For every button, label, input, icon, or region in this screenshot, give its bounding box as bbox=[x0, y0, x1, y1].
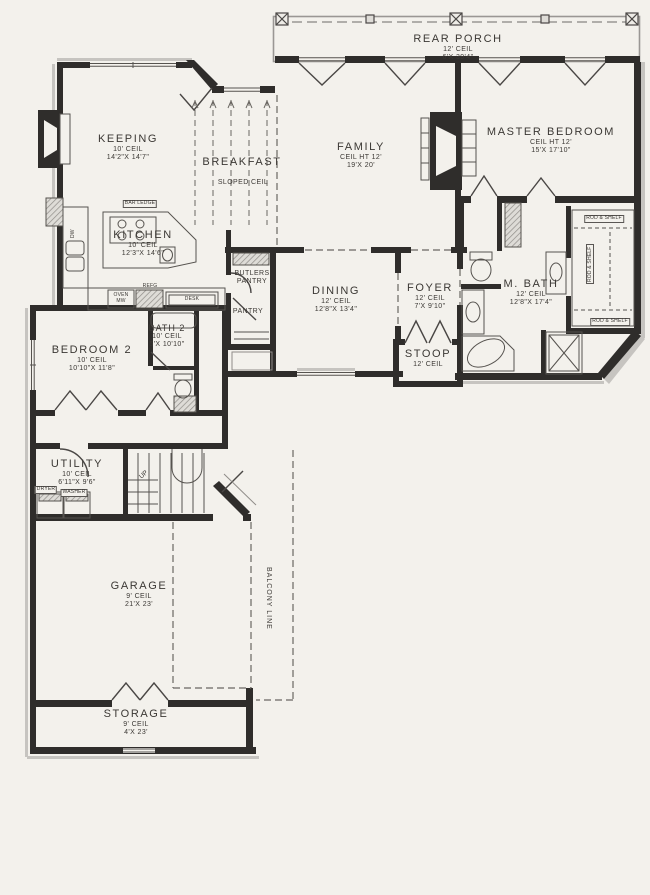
room-ceiling: 9' CEIL bbox=[111, 593, 168, 601]
keeping-hearth bbox=[60, 114, 70, 164]
room-label-rear-porch: REAR PORCH 12' CEIL 6'X 39'4" bbox=[413, 33, 502, 62]
room-name: KITCHEN bbox=[113, 229, 172, 242]
room-dims: 15'X 17'10" bbox=[487, 147, 615, 155]
dashed-lines bbox=[173, 95, 460, 700]
room-name: UTILITY bbox=[51, 458, 103, 471]
room-label-pantry: PANTRY bbox=[233, 308, 263, 316]
kitchen-sink bbox=[66, 241, 84, 255]
floor-plan: REAR PORCH 12' CEIL 6'X 39'4" KEEPING 10… bbox=[0, 0, 650, 895]
room-name: STOOP bbox=[405, 348, 451, 361]
post-x-icon bbox=[626, 13, 638, 25]
room-dims: 6'11"X 9'6" bbox=[51, 479, 103, 487]
room-label-bedroom-2: BEDROOM 2 10' CEIL 10'10"X 11'8" bbox=[52, 344, 132, 373]
room-ceiling: CEIL HT 12' bbox=[337, 154, 385, 162]
room-dims: 14'2"X 14'7" bbox=[98, 154, 158, 162]
room-ceiling: 12' CEIL bbox=[312, 298, 360, 306]
room-ceiling: 10' CEIL bbox=[98, 146, 158, 154]
kitchen-cabinet bbox=[46, 198, 63, 226]
porch-posts bbox=[276, 13, 638, 25]
room-ceiling: 10' CEIL bbox=[52, 357, 132, 365]
room-name: REAR PORCH bbox=[413, 33, 502, 46]
room-label-foyer: FOYER 12' CEIL 7'X 9'10" bbox=[407, 282, 453, 311]
room-ceiling: 12' CEIL bbox=[407, 295, 453, 303]
butlers-counter bbox=[233, 253, 269, 265]
post-x-icon bbox=[276, 13, 288, 25]
room-dims: 12'8"X 13'4" bbox=[312, 306, 360, 314]
room-name: FOYER bbox=[407, 282, 453, 295]
room-ceiling: 12' CEIL bbox=[504, 291, 559, 299]
room-label-garage: GARAGE 9' CEIL 21'X 23' bbox=[111, 580, 168, 609]
room-ceiling: 9' CEIL bbox=[104, 721, 169, 729]
room-name: BUTLERS bbox=[234, 270, 269, 278]
room-name: MASTER BEDROOM bbox=[487, 126, 615, 139]
room-label-dining: DINING 12' CEIL 12'8"X 13'4" bbox=[312, 285, 360, 314]
floor-plan-page: REAR PORCH 12' CEIL 6'X 39'4" KEEPING 10… bbox=[0, 0, 650, 895]
dishwasher-label: DW bbox=[70, 229, 76, 238]
room-ceiling: 10' CEIL bbox=[51, 471, 103, 479]
room-label-kitchen: KITCHEN 10' CEIL 12'3"X 14'6" bbox=[113, 229, 172, 258]
exterior-planter bbox=[232, 352, 272, 370]
refg-label: REFG bbox=[143, 284, 158, 290]
room-dims: 21'X 23' bbox=[111, 601, 168, 609]
room-ceiling: 12' CEIL bbox=[405, 361, 451, 369]
windows bbox=[30, 58, 605, 752]
dryer-label: DRYER bbox=[35, 486, 57, 494]
washer-label: WASHER bbox=[61, 489, 88, 497]
room-name: BATH 2 bbox=[149, 323, 186, 333]
room-name: DINING bbox=[312, 285, 360, 298]
room-name: FAMILY bbox=[337, 141, 385, 154]
refrigerator bbox=[136, 290, 163, 308]
master-vanity-1 bbox=[462, 290, 484, 334]
linen-shelves bbox=[174, 396, 196, 412]
mw-label-line: MW bbox=[114, 299, 129, 305]
room-dims: 5'X 10'10" bbox=[149, 341, 186, 349]
room-ceiling: 10' CEIL bbox=[113, 242, 172, 250]
room-label-bath-2: BATH 2 10' CEIL 5'X 10'10" bbox=[149, 323, 186, 349]
room-label-utility: UTILITY 10' CEIL 6'11"X 9'6" bbox=[51, 458, 103, 487]
room-name: GARAGE bbox=[111, 580, 168, 593]
exterior-trim bbox=[25, 58, 645, 759]
bar-ledge-label: BAR LEDGE bbox=[123, 200, 157, 208]
room-label-breakfast-ceil: SLOPED CEIL bbox=[218, 179, 268, 187]
room-label-master-bath: M. BATH 12' CEIL 12'8"X 17'4" bbox=[504, 278, 559, 307]
room-name: PANTRY bbox=[233, 308, 263, 316]
room-label-stoop: STOOP 12' CEIL bbox=[405, 348, 451, 369]
room-label-storage: STORAGE 9' CEIL 4'X 23' bbox=[104, 708, 169, 737]
room-label-family: FAMILY CEIL HT 12' 19'X 20' bbox=[337, 141, 385, 170]
bath2-toilet-tank bbox=[174, 374, 192, 380]
master-closet bbox=[572, 210, 634, 326]
oven-label: OVEN MW bbox=[114, 293, 129, 305]
room-label-butlers-pantry: BUTLERS PANTRY bbox=[234, 270, 269, 286]
room-name: PANTRY bbox=[234, 278, 269, 286]
wall-pier bbox=[505, 203, 521, 247]
room-dims: 4'X 23' bbox=[104, 729, 169, 737]
room-dims: 7'X 9'10" bbox=[407, 303, 453, 311]
family-shelves bbox=[421, 118, 429, 180]
room-label-keeping: KEEPING 10' CEIL 14'2"X 14'7" bbox=[98, 133, 158, 162]
rod-shelf-label: ROD & SHELF bbox=[586, 244, 594, 284]
room-dims: 12'8"X 17'4" bbox=[504, 299, 559, 307]
post-x-icon bbox=[450, 13, 462, 25]
room-dims: 19'X 20' bbox=[337, 162, 385, 170]
bath2-toilet bbox=[175, 380, 191, 398]
room-label-master-bedroom: MASTER BEDROOM CEIL HT 12' 15'X 17'10" bbox=[487, 126, 615, 155]
room-ceiling: CEIL HT 12' bbox=[487, 139, 615, 147]
room-dims: 10'10"X 11'8" bbox=[52, 365, 132, 373]
room-ceiling: 12' CEIL bbox=[413, 46, 502, 54]
toilet bbox=[471, 259, 491, 281]
rod-shelf-label: ROD & SHELF bbox=[590, 318, 630, 326]
room-dims: 6'X 39'4" bbox=[413, 54, 502, 62]
room-ceiling: 10' CEIL bbox=[149, 333, 186, 341]
room-dims: 12'3"X 14'6" bbox=[113, 250, 172, 258]
room-name: STORAGE bbox=[104, 708, 169, 721]
balcony-line-label: BALCONY LINE bbox=[265, 567, 272, 630]
room-ceiling: SLOPED CEIL bbox=[218, 179, 268, 187]
room-name: BREAKFAST bbox=[202, 156, 281, 169]
room-name: M. BATH bbox=[504, 278, 559, 291]
desk-label: DESK bbox=[185, 297, 199, 303]
room-label-breakfast: BREAKFAST bbox=[202, 156, 281, 169]
fireplaces bbox=[44, 114, 476, 753]
room-name: BEDROOM 2 bbox=[52, 344, 132, 357]
room-name: KEEPING bbox=[98, 133, 158, 146]
rod-shelf-label: ROD & SHELF bbox=[584, 215, 624, 223]
